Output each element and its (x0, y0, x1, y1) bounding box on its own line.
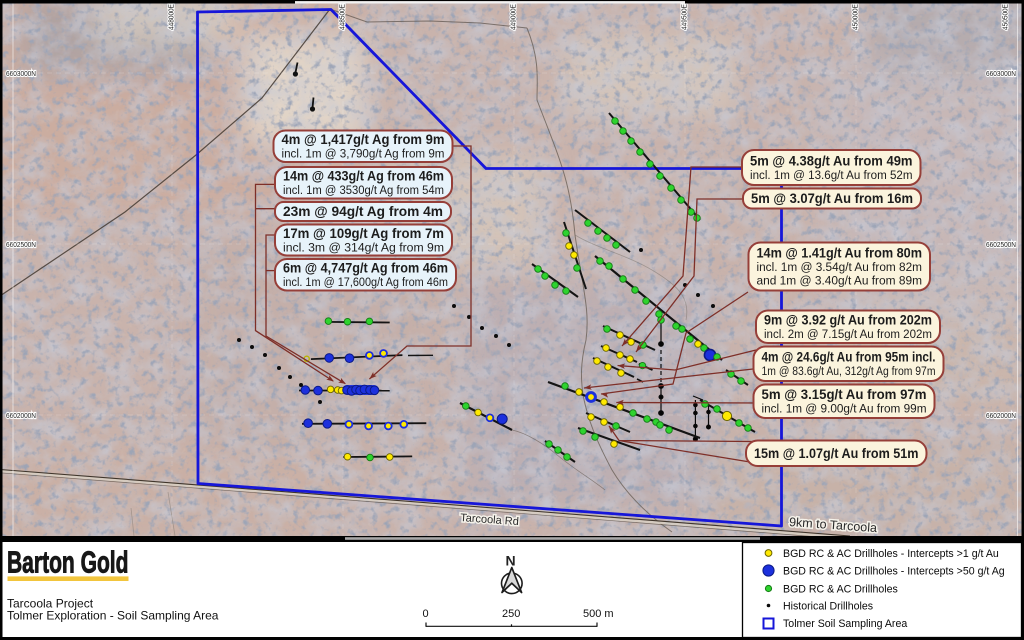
svg-text:449500E: 449500E (680, 4, 689, 30)
svg-text:BGD RC & AC Drillholes - Inter: BGD RC & AC Drillholes - Intercepts >1 g… (783, 548, 999, 560)
svg-text:6602500N: 6602500N (6, 240, 36, 249)
svg-text:5m @ 3.15g/t Au from 97m: 5m @ 3.15g/t Au from 97m (762, 387, 927, 402)
svg-text:1m @ 83.6g/t Au, 312g/t Ag fro: 1m @ 83.6g/t Au, 312g/t Ag from 97m (762, 364, 936, 378)
svg-text:incl. 1m @ 13.6g/t Au from 52m: incl. 1m @ 13.6g/t Au from 52m (750, 168, 913, 182)
svg-text:incl. 1m @ 3.54g/t Au from 82m: incl. 1m @ 3.54g/t Au from 82m (757, 260, 923, 274)
svg-text:N: N (506, 553, 516, 569)
svg-text:6602000N: 6602000N (986, 411, 1016, 420)
svg-text:0: 0 (423, 608, 429, 620)
svg-text:14m @ 1.41g/t Au from 80m: 14m @ 1.41g/t Au from 80m (757, 246, 923, 261)
svg-text:17m @ 109g/t Ag from 7m: 17m @ 109g/t Ag from 7m (283, 226, 444, 241)
svg-text:449000E: 449000E (509, 4, 518, 30)
svg-text:Barton Gold: Barton Gold (7, 545, 129, 579)
svg-text:incl. 1m @ 3,790g/t Ag from 9m: incl. 1m @ 3,790g/t Ag from 9m (282, 147, 445, 161)
svg-text:4m @ 24.6g/t Au from 95m incl.: 4m @ 24.6g/t Au from 95m incl. (762, 350, 936, 365)
svg-text:BGD RC & AC Drillholes: BGD RC & AC Drillholes (783, 584, 898, 596)
svg-text:Historical Drillholes: Historical Drillholes (783, 601, 873, 613)
svg-text:6602000N: 6602000N (6, 411, 36, 420)
svg-text:250: 250 (502, 608, 520, 620)
svg-text:6603000N: 6603000N (986, 69, 1016, 78)
svg-text:4m @ 1,417g/t Ag from 9m: 4m @ 1,417g/t Ag from 9m (282, 132, 445, 147)
svg-text:incl. 1m @ 9.00g/t Au from 99m: incl. 1m @ 9.00g/t Au from 99m (762, 402, 927, 416)
svg-text:Tolmer Exploration - Soil Samp: Tolmer Exploration - Soil Sampling Area (7, 608, 219, 622)
svg-text:448500E: 448500E (338, 4, 347, 30)
svg-text:incl. 2m @ 7.15g/t Au from 202: incl. 2m @ 7.15g/t Au from 202m (764, 327, 932, 341)
svg-text:5m @ 3.07g/t Au from 16m: 5m @ 3.07g/t Au from 16m (751, 191, 913, 206)
svg-text:Tolmer Soil Sampling Area: Tolmer Soil Sampling Area (783, 618, 907, 630)
svg-text:5m @ 4.38g/t Au from 49m: 5m @ 4.38g/t Au from 49m (750, 153, 913, 168)
svg-text:incl. 1m @ 17,600g/t Ag from 4: incl. 1m @ 17,600g/t Ag from 46m (283, 275, 448, 289)
svg-text:450000E: 450000E (851, 4, 860, 30)
svg-text:448000E: 448000E (167, 4, 176, 30)
svg-text:BGD RC & AC Drillholes - Inter: BGD RC & AC Drillholes - Intercepts >50 … (783, 566, 1005, 578)
svg-text:15m @ 1.07g/t Au from 51m: 15m @ 1.07g/t Au from 51m (754, 446, 919, 461)
svg-text:and 1m @ 3.40g/t Au from 89m: and 1m @ 3.40g/t Au from 89m (757, 273, 923, 287)
svg-text:500 m: 500 m (583, 608, 614, 620)
svg-text:9m @ 3.92 g/t Au from 202m: 9m @ 3.92 g/t Au from 202m (764, 313, 932, 328)
svg-text:14m @ 433g/t Ag from 46m: 14m @ 433g/t Ag from 46m (283, 169, 444, 184)
svg-text:23m @ 94g/t Ag from 4m: 23m @ 94g/t Ag from 4m (283, 204, 443, 219)
svg-text:incl. 3m @ 314g/t Ag from 9m: incl. 3m @ 314g/t Ag from 9m (283, 240, 444, 254)
svg-text:6602500N: 6602500N (986, 240, 1016, 249)
svg-text:incl. 1m @ 3530g/t Ag from 54m: incl. 1m @ 3530g/t Ag from 54m (283, 183, 444, 197)
svg-text:6m @ 4,747g/t Ag from 46m: 6m @ 4,747g/t Ag from 46m (283, 261, 448, 276)
svg-text:450500E: 450500E (1001, 4, 1010, 30)
svg-text:6603000N: 6603000N (6, 69, 36, 78)
